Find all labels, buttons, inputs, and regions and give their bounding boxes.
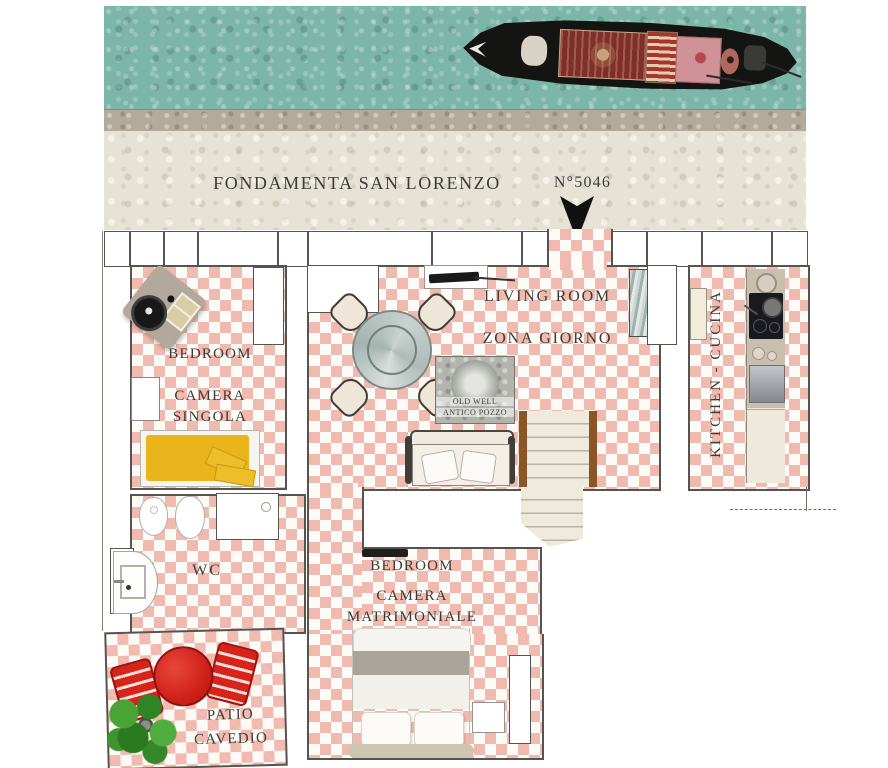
- corridor-opening: [309, 483, 358, 491]
- dining-table: [352, 310, 432, 390]
- single-bedroom-label-it2: SINGOLA: [135, 409, 285, 426]
- pan-icon: [762, 297, 783, 318]
- old-well-label-it: ANTICO POZZO: [436, 408, 514, 417]
- living-room-label-en: LIVING ROOM: [455, 288, 640, 306]
- boundary-vertical-line: [806, 487, 807, 511]
- kitchen-label: KITCHEN - CUCINA: [708, 264, 725, 484]
- entrance-side-wall: [647, 265, 677, 345]
- patio-floor: PATIO CAVEDIO: [104, 628, 288, 768]
- sofa-pillow: [421, 449, 460, 484]
- floor-plan-scene: FONDAMENTA SAN LORENZO N°5046: [0, 0, 888, 768]
- patio-label-en: PATIO: [178, 706, 282, 726]
- gondola-rug-runner: [645, 31, 678, 84]
- turntable-center-dot: [144, 306, 154, 316]
- sofa: [405, 430, 515, 486]
- sofa-pillow: [459, 450, 497, 484]
- double-bedroom-label-en: BEDROOM: [322, 558, 502, 575]
- double-bedroom-label-it2: MATRIMONIALE: [322, 609, 502, 626]
- wc-label: WC: [175, 562, 239, 580]
- sink-bowl-icon: [752, 347, 765, 360]
- bedroom-door-leaf: [253, 267, 284, 345]
- bidet: [139, 497, 168, 536]
- counter-divider: [747, 409, 785, 410]
- burner-icon: [769, 322, 780, 333]
- refrigerator: [749, 365, 785, 403]
- tv-bar: [362, 549, 408, 557]
- toilet: [175, 496, 205, 539]
- stairs-lower: [521, 487, 583, 547]
- gondola-stern-seat: [743, 45, 766, 71]
- exterior-wall-band: [104, 231, 808, 267]
- tv-shelf: [424, 265, 488, 289]
- stair-rail-left: [519, 411, 527, 487]
- bedroom-door-leaf-2: [509, 655, 531, 744]
- window-tick: [431, 232, 433, 266]
- window-tick: [197, 232, 199, 266]
- kitchen-sink-icon: [756, 273, 777, 294]
- double-bed-pillow: [361, 712, 411, 747]
- window-tick: [163, 232, 165, 266]
- stairs-upper: [519, 411, 597, 487]
- patio-label-it: CAVEDIO: [167, 729, 295, 750]
- double-bed-headboard: [348, 744, 474, 758]
- living-entry-opening: [549, 262, 607, 270]
- old-well: OLD WELL ANTICO POZZO: [435, 356, 515, 424]
- double-bed-sheet: [353, 675, 469, 709]
- cooktop: [749, 293, 783, 339]
- gondola-bow-deck: [520, 35, 547, 66]
- dining-table-inner-ring: [367, 325, 417, 375]
- single-bedroom-label-en: BEDROOM: [135, 346, 285, 363]
- single-bed-pillow: [214, 464, 256, 488]
- single-bed: [140, 430, 260, 487]
- sofa-arm-left: [405, 436, 412, 484]
- double-bed-pillow: [414, 712, 464, 747]
- outer-boundary-line: [102, 231, 103, 631]
- window-tick: [771, 232, 773, 266]
- burner-icon: [753, 319, 767, 333]
- window-tick: [646, 232, 648, 266]
- window-tick: [307, 232, 309, 266]
- kitchen-door-leaf: [690, 288, 707, 340]
- old-well-label-en: OLD WELL: [436, 397, 514, 406]
- potted-plant: [102, 688, 190, 768]
- shower-tray: [216, 493, 279, 540]
- nightstand: [472, 702, 505, 733]
- window-tick: [129, 232, 131, 266]
- stair-rail-right: [589, 411, 597, 487]
- double-bedroom-label-it1: CAMERA: [322, 588, 502, 605]
- faucet-icon: [114, 580, 124, 583]
- living-room-label-it: ZONA GIORNO: [455, 330, 640, 348]
- double-bed: [352, 628, 470, 758]
- shower-drain-icon: [261, 502, 271, 512]
- tv-soundbar: [429, 272, 479, 284]
- stone-embankment: [104, 109, 806, 133]
- gondola-rug-main: [558, 29, 648, 81]
- bidet-drain: [150, 506, 158, 514]
- window-tick: [521, 232, 523, 266]
- double-bed-blanket: [353, 651, 469, 675]
- window-tick: [701, 232, 703, 266]
- entry-vestibule-floor: [547, 229, 613, 266]
- house-number-label: N°5046: [520, 174, 645, 192]
- notebook-spine: [174, 304, 191, 318]
- boundary-dash-line: [730, 509, 836, 510]
- single-bedroom-label-it1: CAMERA: [135, 388, 285, 405]
- washbasin-drain: [126, 585, 131, 590]
- window-tick: [277, 232, 279, 266]
- sink-bowl-icon: [767, 351, 777, 361]
- kitchen-counter: [746, 269, 785, 483]
- pan-handle-icon: [744, 305, 758, 316]
